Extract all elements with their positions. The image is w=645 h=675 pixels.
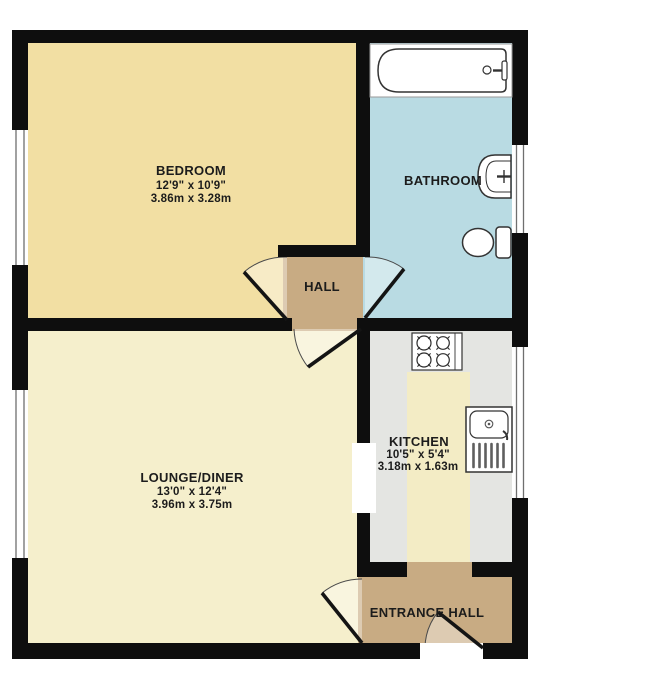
wall-lounge-kitchen-upper [357, 331, 370, 443]
toilet-cistern [496, 227, 511, 258]
bedroom-window-frame [12, 130, 28, 265]
bedroom-window [12, 130, 28, 265]
bathtub-tap [502, 61, 507, 80]
hall-floor [283, 257, 363, 331]
wall-bedroom-bathroom [356, 43, 370, 245]
bathroom-label: BATHROOM [404, 173, 482, 188]
kitchen-sink-icon [466, 407, 512, 472]
wall-lounge-kitchen-lower [357, 513, 370, 577]
bedroom-dims-imperial: 12'9" x 10'9" [156, 180, 226, 192]
front-door-opening [420, 643, 483, 659]
hob-icon [412, 333, 462, 370]
wall-top [12, 30, 528, 43]
toilet-icon [463, 227, 512, 258]
lounge-kitchen-opening [352, 443, 376, 513]
lounge-dims-imperial: 13'0" x 12'4" [157, 486, 227, 498]
entrance-hall-label: ENTRANCE HALL [370, 605, 484, 620]
lounge-label: LOUNGE/DINER [140, 470, 244, 485]
floor-plan: BEDROOM 12'9" x 10'9" 3.86m x 3.28m BATH… [0, 0, 645, 675]
kitchen-window [512, 347, 528, 498]
lounge-dims-metric: 3.96m x 3.75m [152, 499, 233, 511]
bathtub-drain [483, 66, 491, 74]
toilet-bowl [463, 229, 494, 257]
wall-kitchen-entrance-right [472, 562, 512, 577]
kitchen-dims-metric: 3.18m x 1.63m [378, 461, 459, 473]
wall-kitchen-entrance-left [370, 562, 407, 577]
lounge-window-frame [12, 390, 28, 558]
kitchen-doorway-floor [407, 562, 472, 577]
basin-icon [478, 155, 511, 198]
kitchen-dims-imperial: 10'5" x 5'4" [386, 449, 450, 461]
hall-label: HALL [304, 279, 340, 294]
bathroom-window-frame [512, 145, 528, 233]
kitchen-window-frame [512, 347, 528, 498]
floor-plan-page: BEDROOM 12'9" x 10'9" 3.86m x 3.28m BATH… [0, 0, 645, 675]
bathroom-window [512, 145, 528, 233]
wall-hall-top [278, 245, 370, 257]
kitchen-label: KITCHEN [389, 434, 449, 449]
wall-bathroom-kitchen [357, 318, 512, 331]
sink-drain-center [488, 423, 491, 426]
lounge-window [12, 390, 28, 558]
bathtub-icon [370, 44, 512, 97]
wall-left [12, 30, 28, 659]
bedroom-dims-metric: 3.86m x 3.28m [151, 193, 232, 205]
bedroom-label: BEDROOM [156, 163, 226, 178]
wall-right [512, 30, 528, 659]
wall-bedroom-lounge [28, 318, 292, 331]
